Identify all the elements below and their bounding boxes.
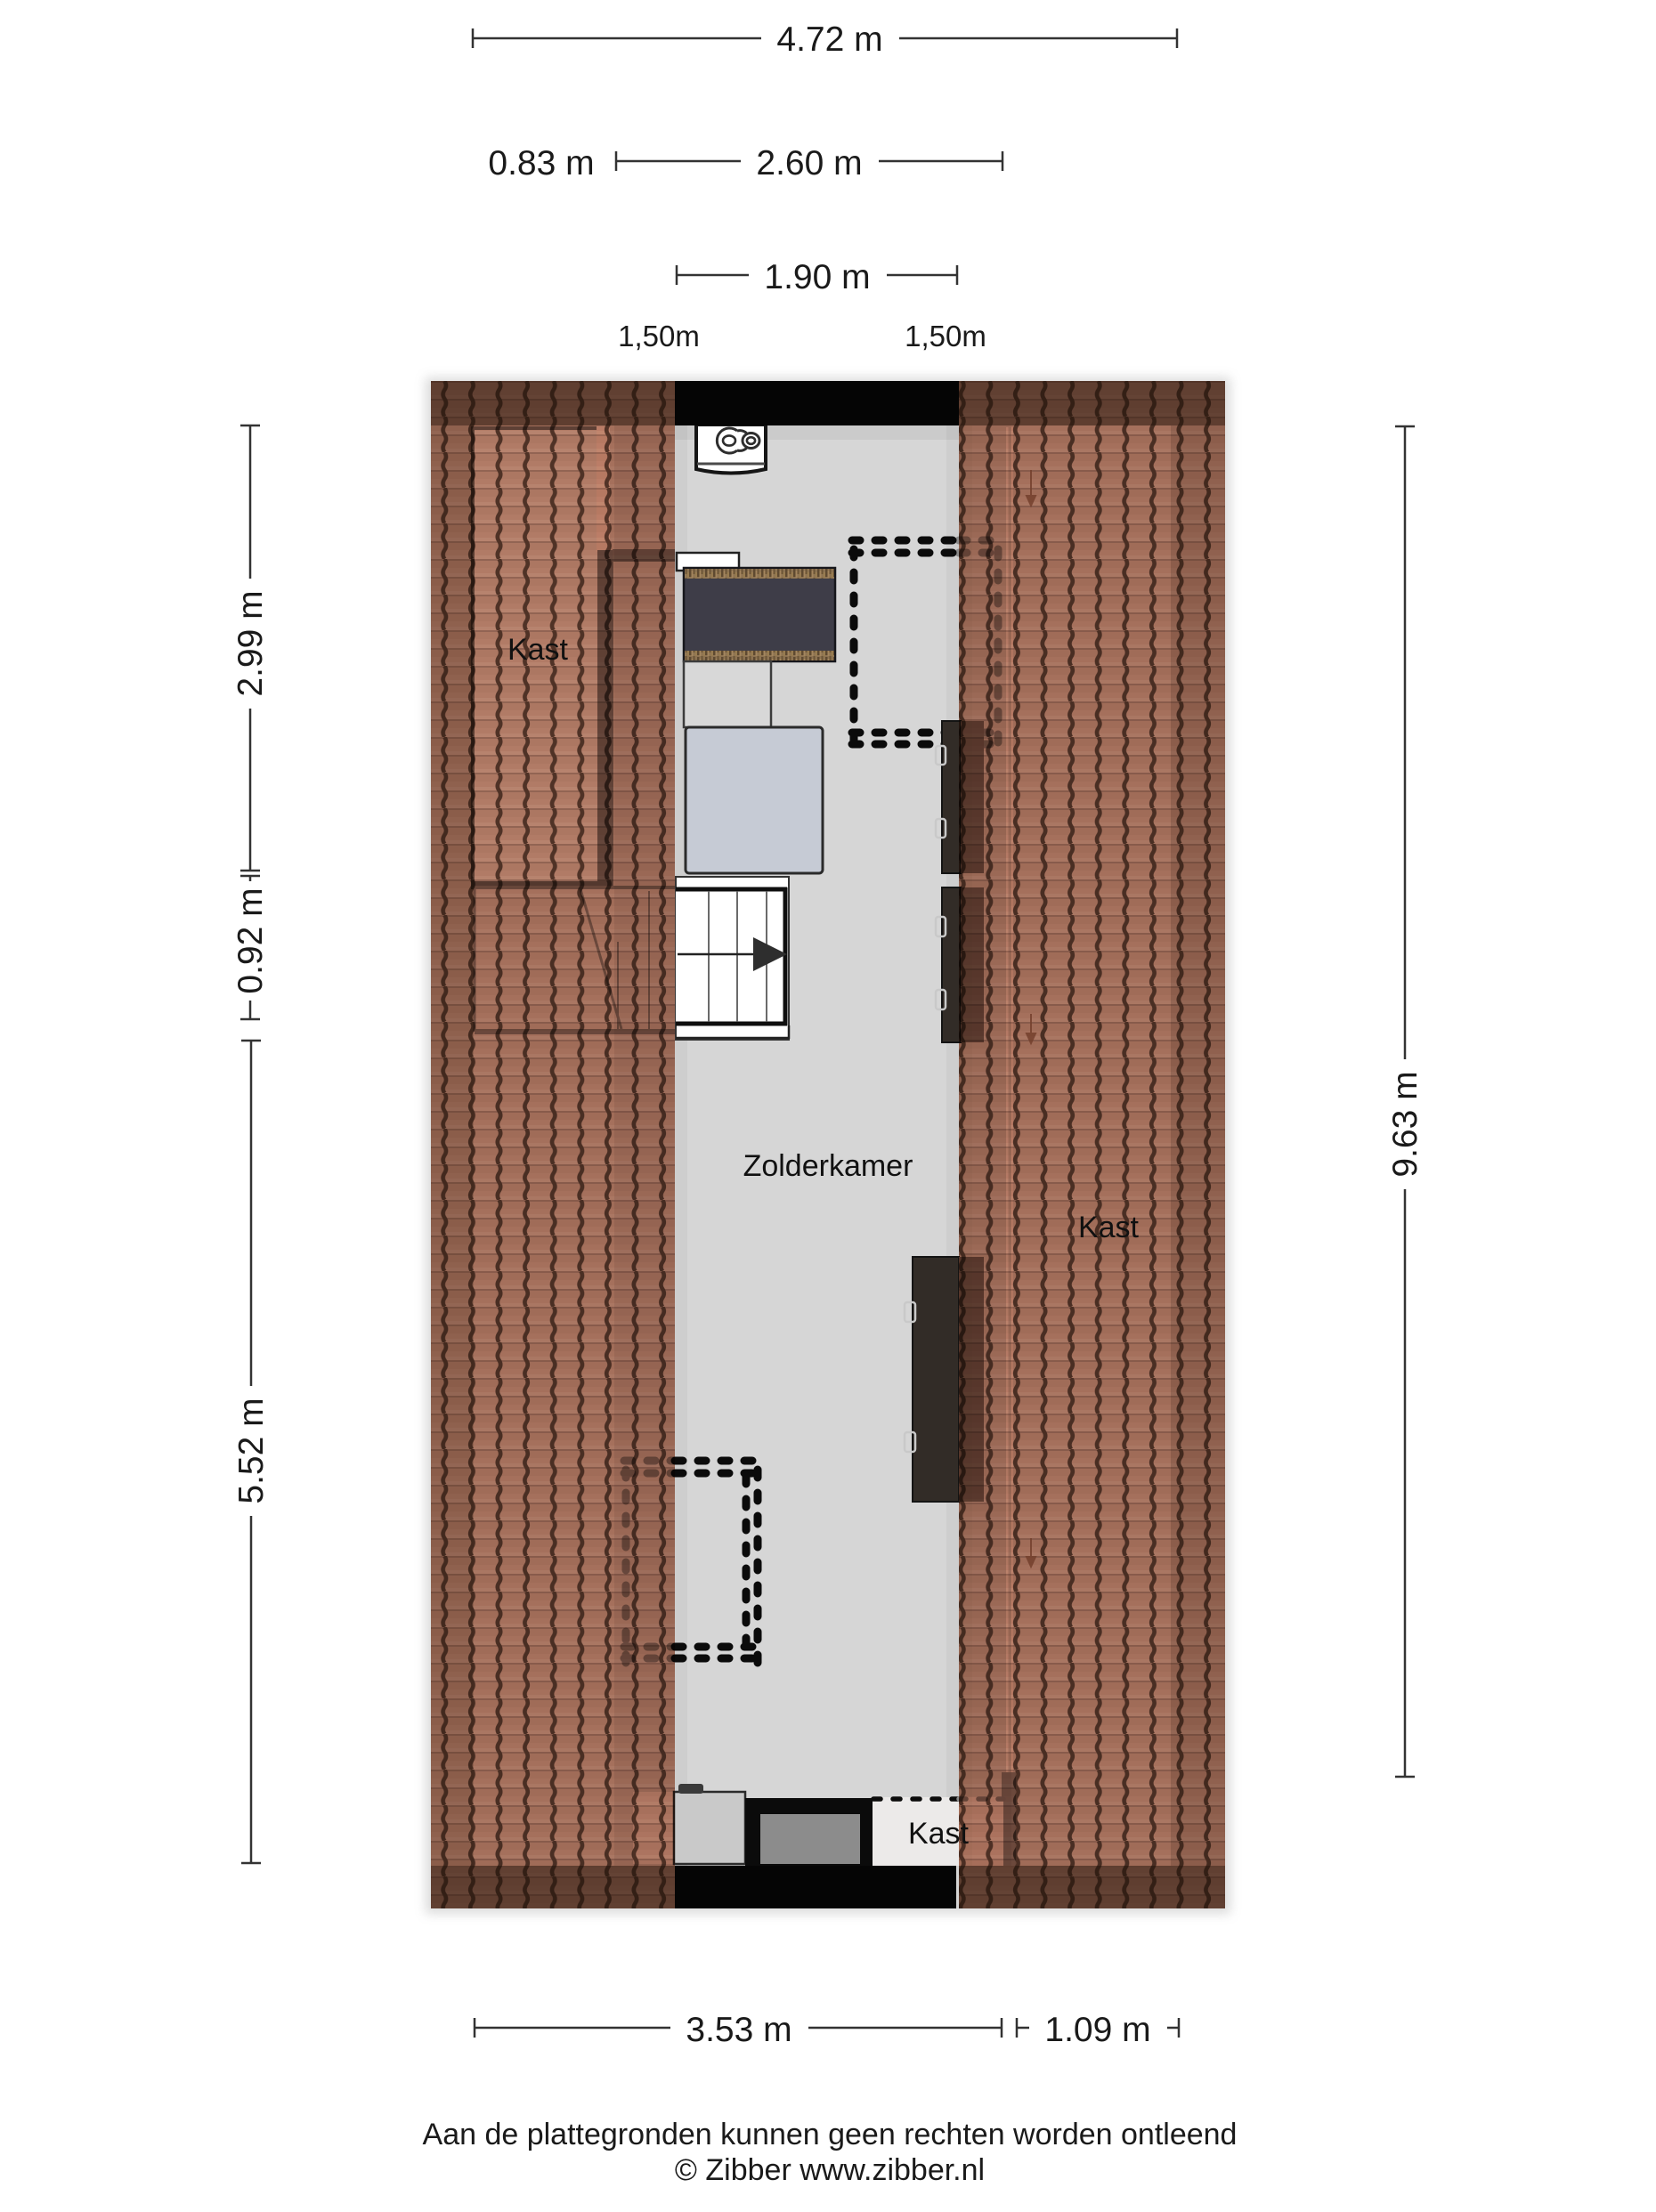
svg-text:3.53 m: 3.53 m <box>686 2011 791 2049</box>
svg-text:0.83 m: 0.83 m <box>488 144 594 182</box>
svg-text:1.09 m: 1.09 m <box>1044 2011 1150 2049</box>
svg-text:Kast: Kast <box>1078 1211 1140 1244</box>
svg-text:5.52 m: 5.52 m <box>232 1398 271 1503</box>
svg-text:0.92 m: 0.92 m <box>231 887 270 993</box>
svg-text:2.60 m: 2.60 m <box>756 144 862 182</box>
svg-text:4.72 m: 4.72 m <box>776 20 882 59</box>
svg-text:Kast: Kast <box>507 633 569 667</box>
svg-text:Zolderkamer: Zolderkamer <box>743 1149 913 1183</box>
svg-text:1.90 m: 1.90 m <box>764 258 870 296</box>
svg-text:1,50m: 1,50m <box>618 320 700 352</box>
svg-text:© Zibber www.zibber.nl: © Zibber www.zibber.nl <box>675 2153 985 2187</box>
svg-text:9.63 m: 9.63 m <box>1386 1071 1425 1177</box>
svg-text:2.99 m: 2.99 m <box>231 590 270 696</box>
svg-text:Kast: Kast <box>908 1817 970 1851</box>
svg-text:Aan de plattegronden kunnen ge: Aan de plattegronden kunnen geen rechten… <box>423 2118 1238 2151</box>
svg-text:1,50m: 1,50m <box>905 320 986 352</box>
